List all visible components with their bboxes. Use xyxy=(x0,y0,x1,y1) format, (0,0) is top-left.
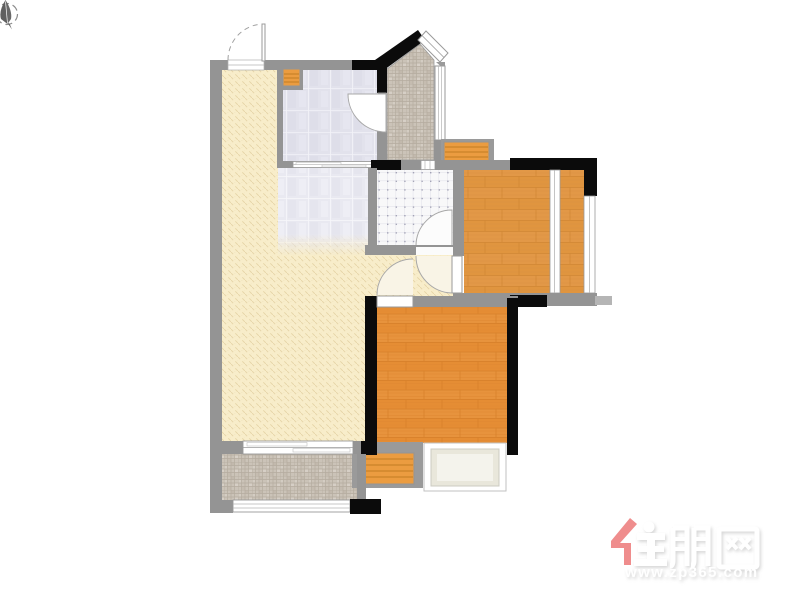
svg-text:www.zp365.com: www.zp365.com xyxy=(624,564,759,581)
